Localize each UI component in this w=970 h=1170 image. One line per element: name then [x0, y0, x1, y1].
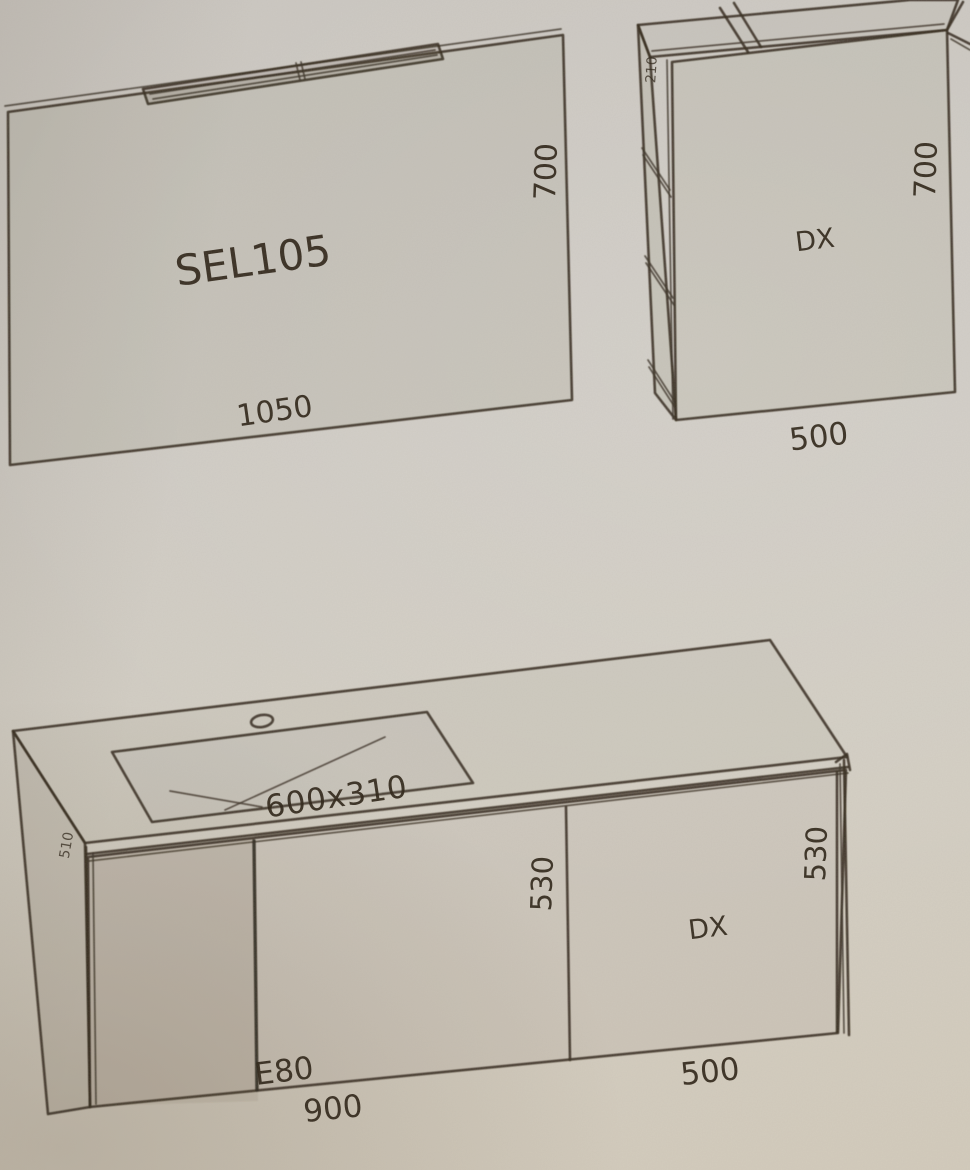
- paper-grain-overlay: [0, 0, 970, 1170]
- photographed-technical-drawing: SEL105 1050 700 210 DX 700 500: [0, 0, 970, 1170]
- furniture-drawing-canvas: SEL105 1050 700 210 DX 700 500: [0, 0, 970, 1170]
